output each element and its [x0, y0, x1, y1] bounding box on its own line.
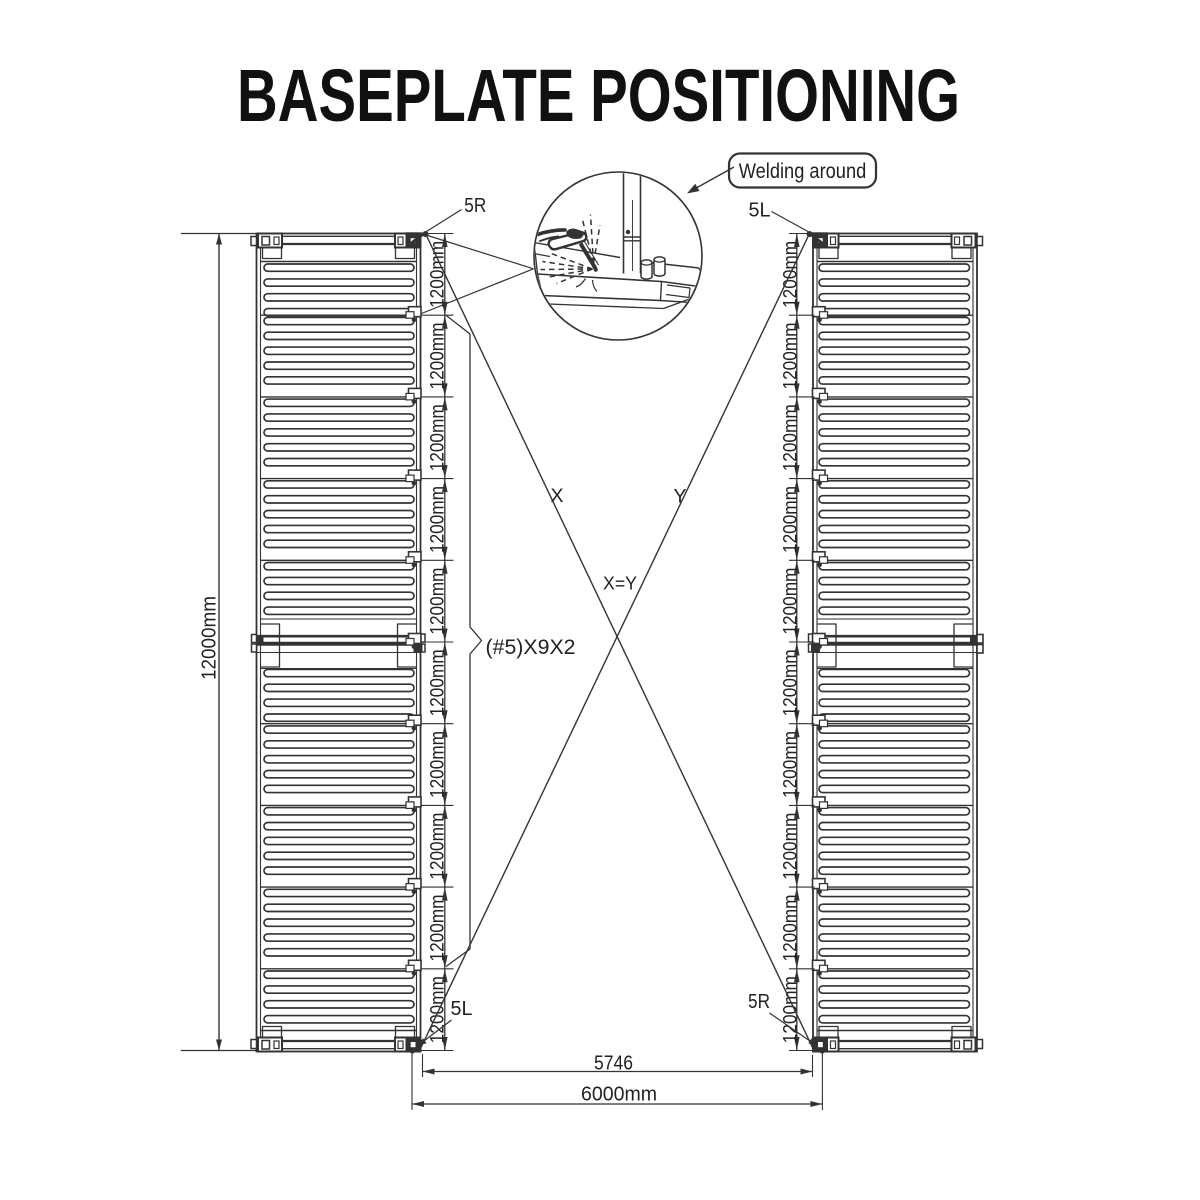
svg-text:X=Y: X=Y — [603, 574, 637, 594]
svg-text:1200mm: 1200mm — [428, 976, 449, 1043]
svg-text:1200mm: 1200mm — [780, 241, 801, 308]
svg-text:1200mm: 1200mm — [428, 731, 449, 798]
svg-text:1200mm: 1200mm — [428, 649, 449, 716]
svg-text:Y: Y — [673, 486, 686, 508]
svg-text:1200mm: 1200mm — [780, 649, 801, 716]
svg-text:1200mm: 1200mm — [428, 404, 449, 471]
svg-text:1200mm: 1200mm — [428, 568, 449, 635]
svg-text:1200mm: 1200mm — [780, 568, 801, 635]
svg-text:X: X — [550, 485, 563, 507]
svg-text:1200mm: 1200mm — [428, 486, 449, 553]
svg-text:1200mm: 1200mm — [428, 895, 449, 962]
svg-text:Welding around: Welding around — [739, 160, 867, 183]
svg-text:1200mm: 1200mm — [780, 323, 801, 390]
svg-text:5746: 5746 — [594, 1053, 633, 1075]
svg-text:BASEPLATE POSITIONING: BASEPLATE POSITIONING — [237, 54, 960, 137]
svg-text:1200mm: 1200mm — [780, 895, 801, 962]
svg-text:5L: 5L — [451, 998, 473, 1020]
svg-text:1200mm: 1200mm — [780, 813, 801, 880]
svg-text:1200mm: 1200mm — [780, 486, 801, 553]
svg-text:12000mm: 12000mm — [199, 596, 221, 680]
svg-text:5L: 5L — [749, 200, 771, 222]
svg-text:1200mm: 1200mm — [428, 813, 449, 880]
svg-text:6000mm: 6000mm — [581, 1084, 657, 1106]
svg-text:1200mm: 1200mm — [780, 731, 801, 798]
svg-text:1200mm: 1200mm — [428, 323, 449, 390]
svg-text:(#5)X9X2: (#5)X9X2 — [486, 636, 576, 659]
svg-text:1200mm: 1200mm — [780, 404, 801, 471]
svg-text:5R: 5R — [464, 195, 486, 217]
svg-text:5R: 5R — [748, 991, 770, 1013]
